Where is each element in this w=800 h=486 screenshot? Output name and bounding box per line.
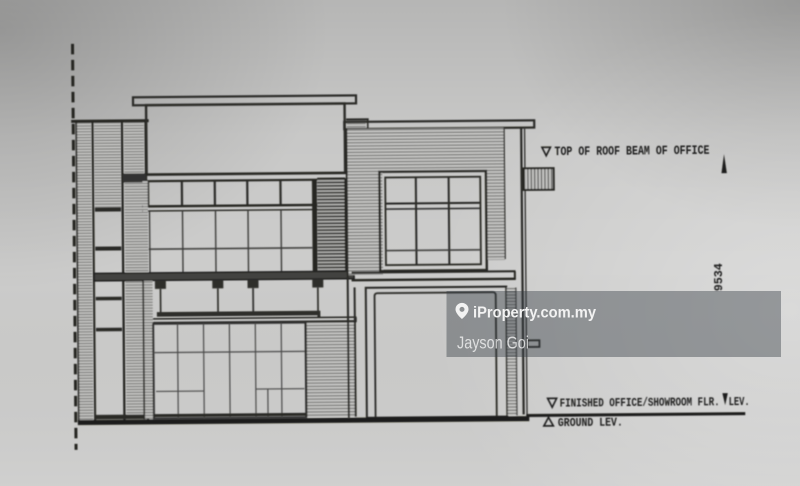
svg-text:GROUND LEV.: GROUND LEV. bbox=[558, 416, 623, 431]
svg-text:FINISHED OFFICE/SHOWROOM FLR.: FINISHED OFFICE/SHOWROOM FLR. bbox=[560, 395, 720, 410]
svg-text:Jayson Goi: Jayson Goi bbox=[457, 333, 529, 353]
svg-text:LEV.: LEV. bbox=[729, 395, 750, 409]
svg-text:TOP OF ROOF BEAM OF OFFICE: TOP OF ROOF BEAM OF OFFICE bbox=[554, 143, 709, 159]
svg-text:9534: 9534 bbox=[712, 263, 726, 291]
svg-text:iProperty.com.my: iProperty.com.my bbox=[473, 305, 596, 322]
